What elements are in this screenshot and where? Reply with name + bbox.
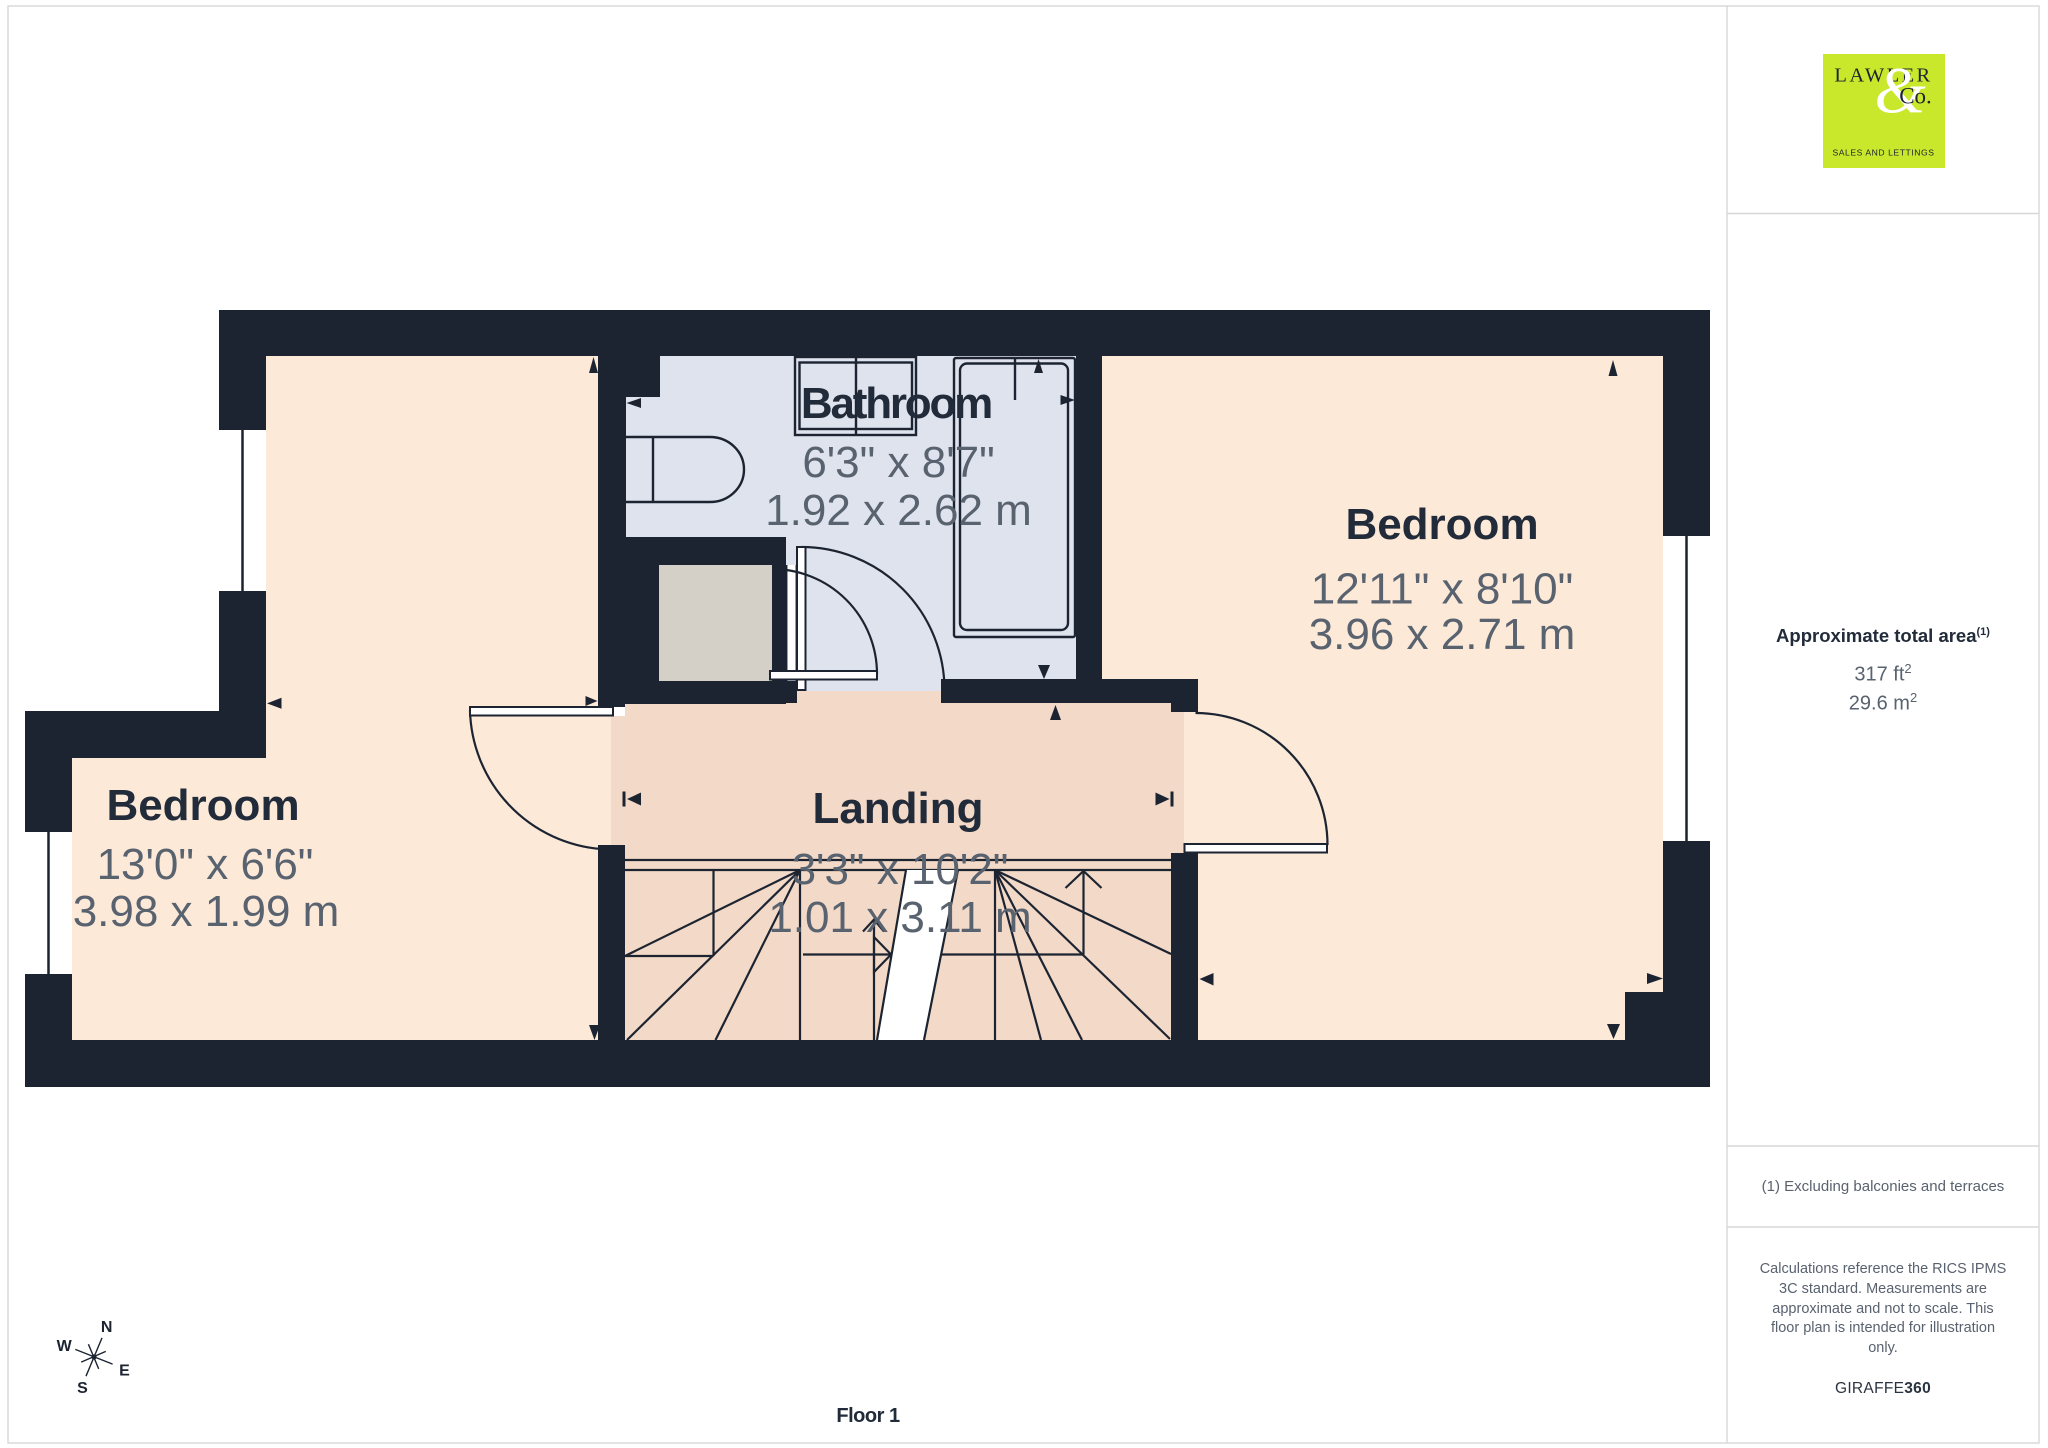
svg-text:SALES AND LETTINGS: SALES AND LETTINGS (1832, 148, 1934, 158)
svg-text:Co.: Co. (1899, 84, 1932, 109)
